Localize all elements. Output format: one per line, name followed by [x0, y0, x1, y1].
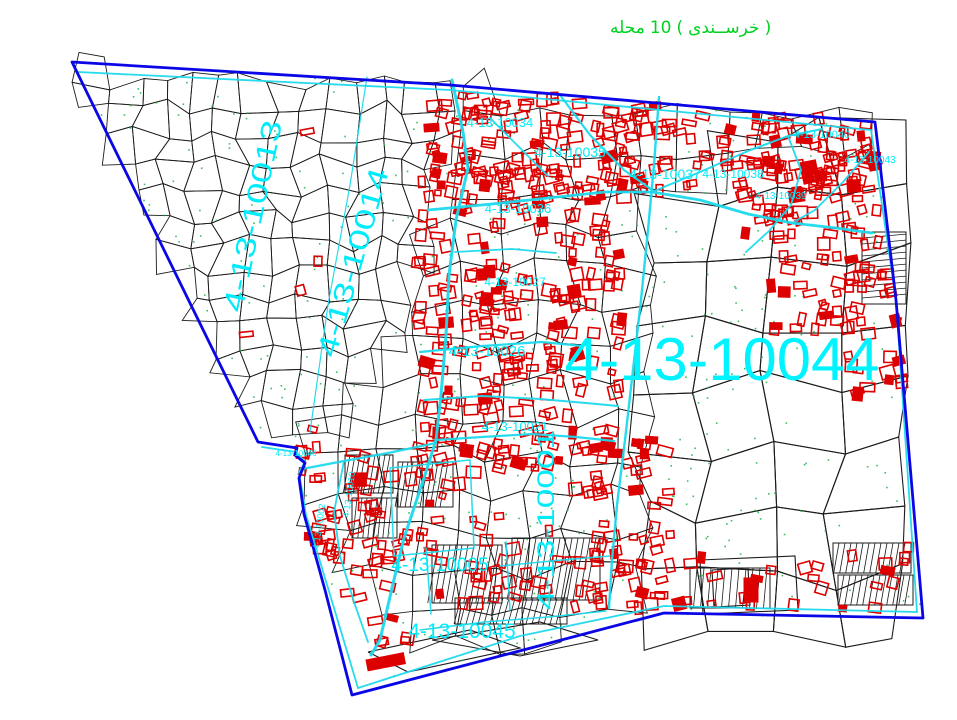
zone-label: 4-13-10014: [311, 164, 395, 360]
zone-label: 4-13-10037: [629, 166, 701, 182]
district-map: 4-13-100134-13-100144-13-100444-13-10034…: [0, 0, 957, 720]
zone-label: 4-13-10001: [533, 430, 560, 610]
zone-label: 4-13-10040: [794, 129, 850, 141]
zone-label: 4-13-10036: [485, 201, 552, 216]
title-word-khorsandi: خرســندی: [688, 17, 759, 39]
zone-label: 4-13-10045: [408, 620, 515, 643]
map-title: محله 10 ( خرســندی ): [610, 17, 771, 39]
zone-label: 4-13-10046: [276, 449, 317, 458]
zone-label: 4-13-10010: [341, 471, 357, 518]
zone-label: 4-13-10038: [702, 167, 764, 181]
zone-label: 4-13-10035: [534, 144, 606, 160]
zone-label: 4-13-10043: [844, 155, 896, 166]
zone-label: 4-13-10034: [467, 115, 534, 130]
zone-label: 4-13-10026: [449, 343, 526, 360]
title-word-mahalleh: محله: [610, 17, 645, 39]
zone-label: 4-13-10039: [755, 191, 807, 202]
zone-label: 4-13-10044: [565, 326, 880, 393]
title-close-paren: ): [765, 17, 772, 39]
map-canvas: 4-13-100134-13-100144-13-100444-13-10034…: [0, 0, 957, 720]
title-open-paren: (: [676, 17, 683, 39]
zone-label: 4-13-10027: [484, 275, 546, 289]
title-number: 10: [650, 17, 672, 39]
zone-label: 4-13-10005: [391, 555, 488, 576]
